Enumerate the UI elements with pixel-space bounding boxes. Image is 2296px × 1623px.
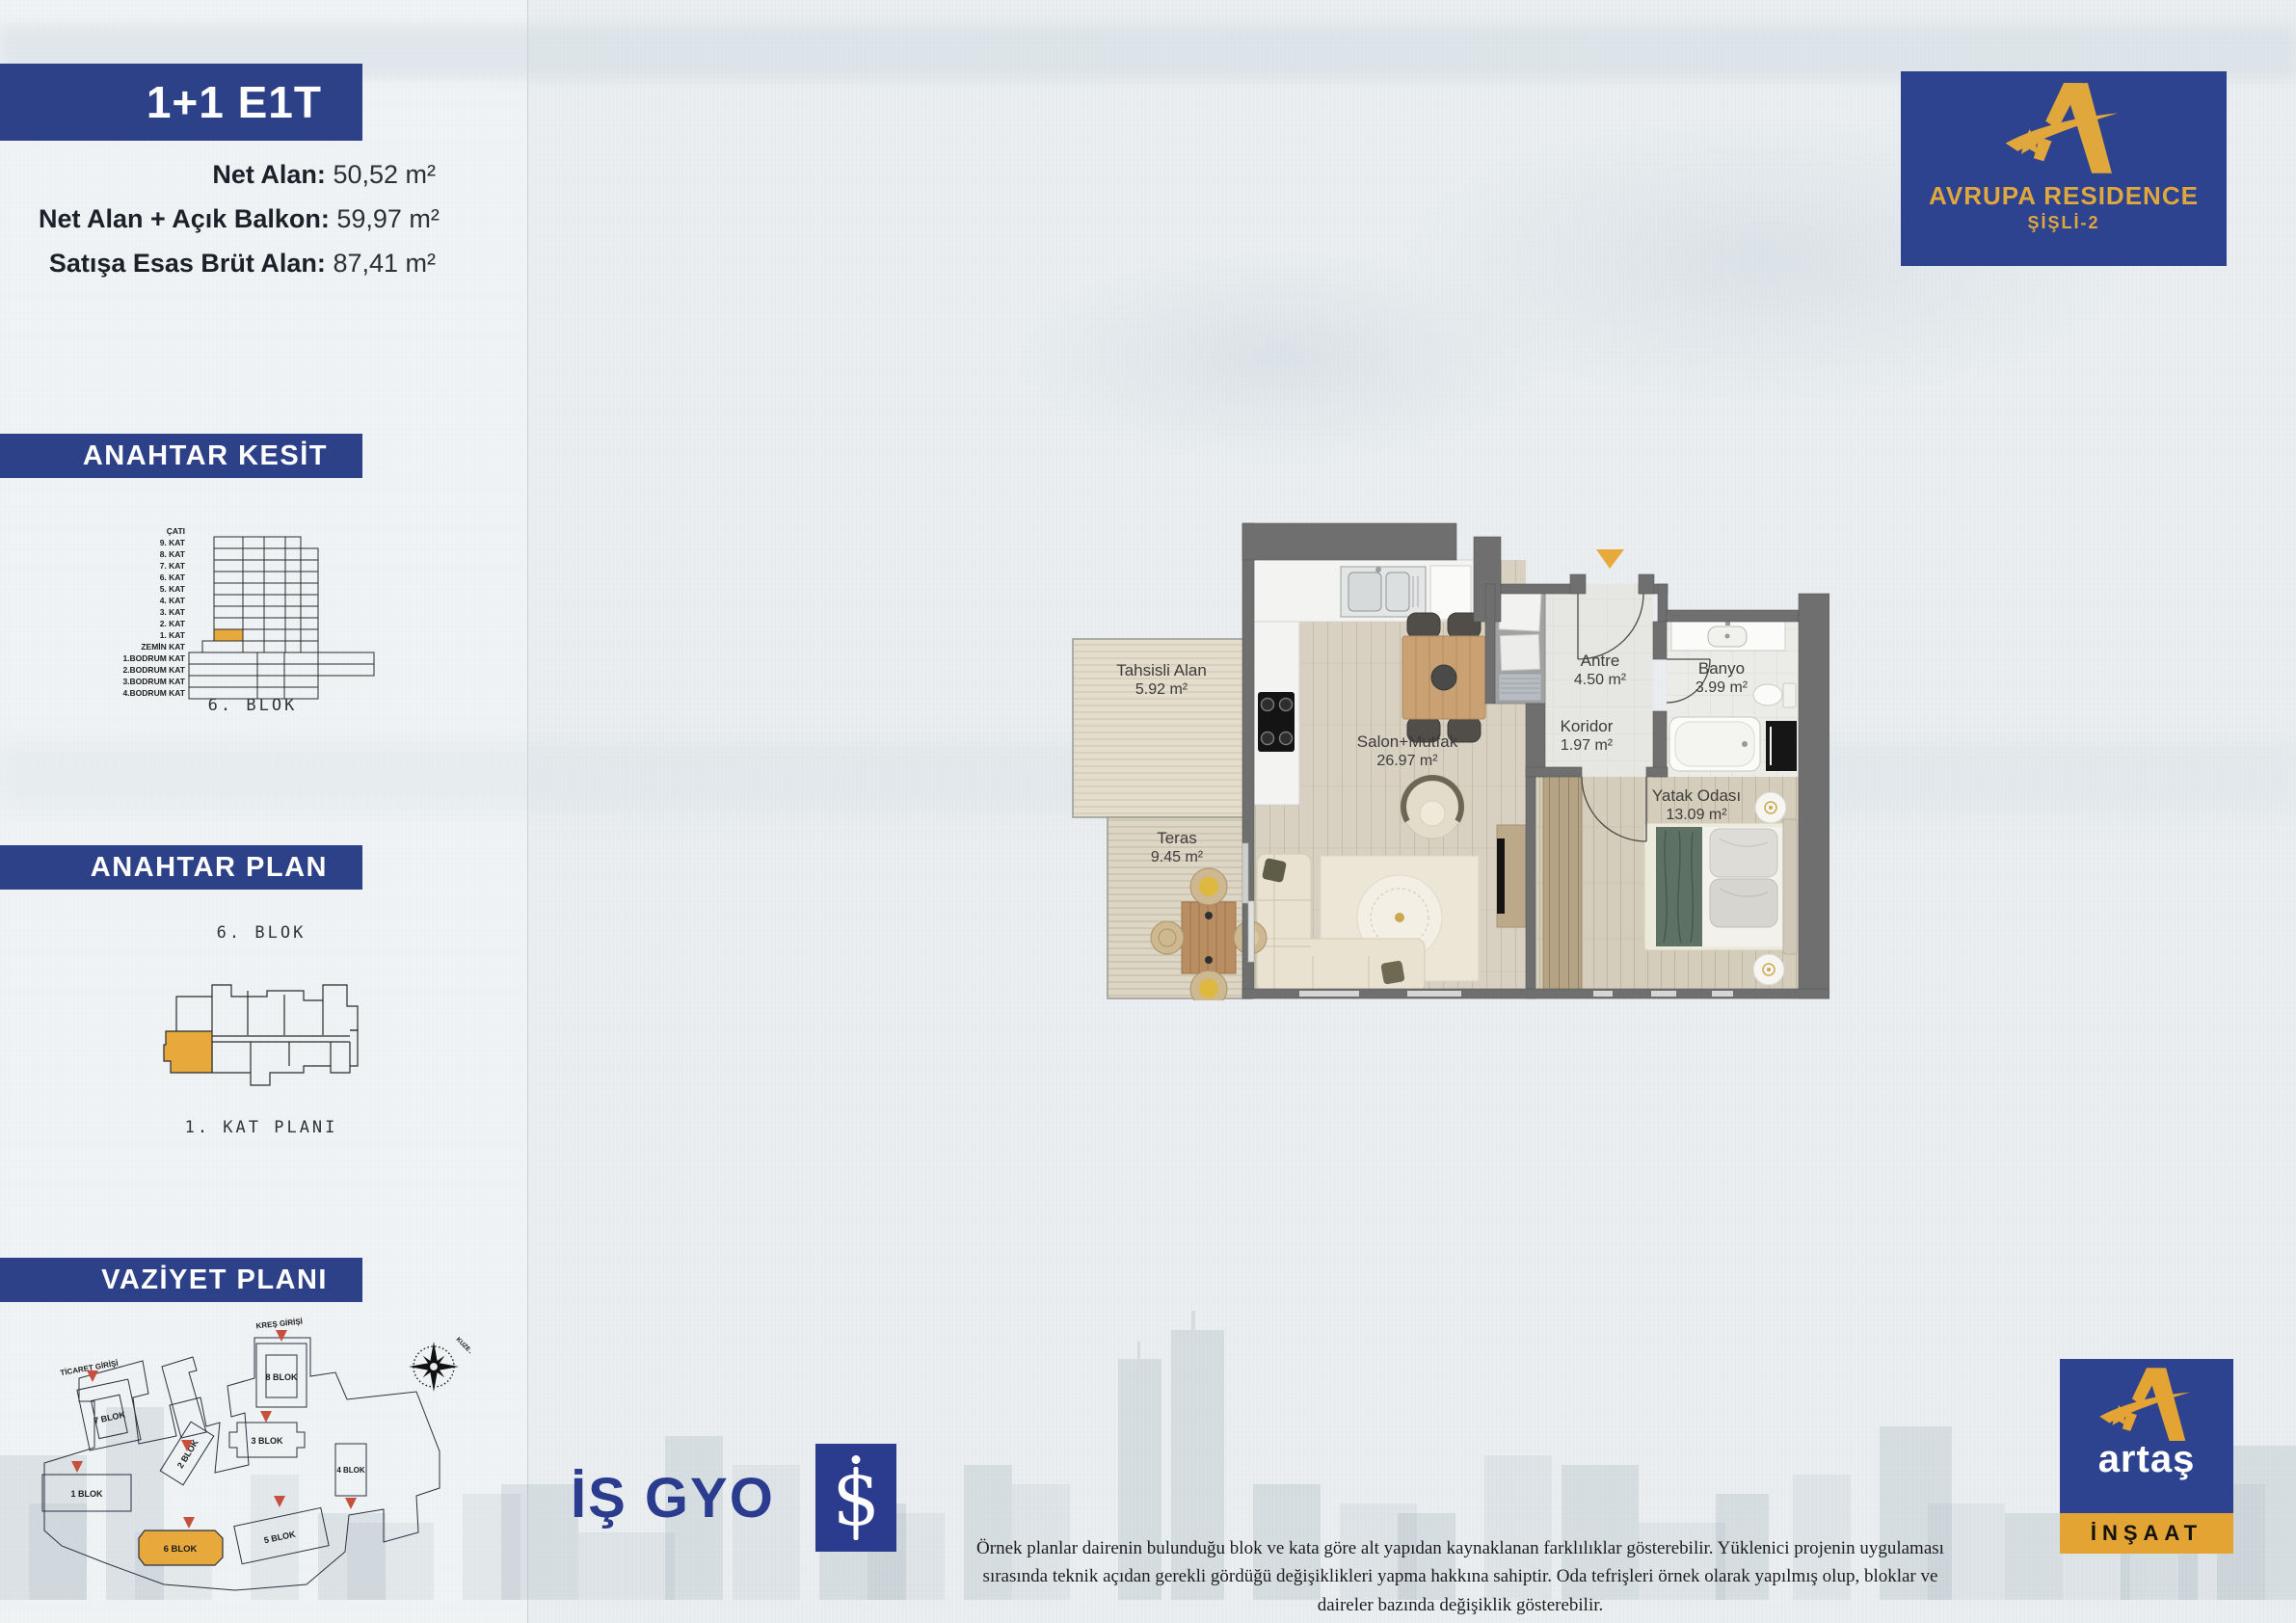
room-label-koridor: Koridor1.97 m² [1561, 717, 1614, 756]
room-label-teras: Teras9.45 m² [1151, 829, 1203, 867]
room-label-banyo: Banyo3.99 m² [1695, 659, 1748, 698]
site-block-1: 1 BLOK [42, 1475, 131, 1511]
unit-code: 1+1 E1T [147, 76, 322, 128]
headboard [1783, 819, 1797, 954]
wardrobe [1543, 777, 1582, 991]
room-label-antre: Antre4.50 m² [1574, 652, 1626, 690]
key-section-caption: 6. BLOK [108, 696, 397, 715]
svg-text:2. KAT: 2. KAT [160, 619, 186, 628]
svg-text:ÇATI: ÇATI [167, 526, 185, 536]
room-label-yatak-odasi: Yatak Odası13.09 m² [1652, 786, 1741, 825]
highlighted-unit [164, 1031, 212, 1073]
artas-division: İNŞAAT [2091, 1521, 2203, 1546]
isbank-symbol-icon: S [815, 1444, 896, 1552]
artas-logo-band: İNŞAAT [2060, 1513, 2233, 1554]
svg-text:4 BLOK: 4 BLOK [336, 1466, 365, 1475]
floor-plan: Tahsisli Alan5.92 m² Teras9.45 m² Salon+… [1068, 519, 1829, 1000]
svg-text:1.BODRUM KAT: 1.BODRUM KAT [122, 653, 185, 663]
highlighted-floor-cell [214, 629, 243, 641]
site-boundary [44, 1338, 440, 1590]
spec-label: Satışa Esas Brüt Alan: [49, 249, 326, 278]
room-label-tahsisli: Tahsisli Alan5.92 m² [1116, 661, 1207, 700]
svg-text:3. KAT: 3. KAT [160, 607, 186, 617]
site-block-8: 8 BLOK [256, 1344, 307, 1407]
room-label-salon: Salon+Mutfak26.97 m² [1357, 732, 1457, 771]
svg-text:5. KAT: 5. KAT [160, 584, 186, 594]
key-section-diagram: ÇATI 9. KAT 8. KAT 7. KAT 6. KAT 5. KAT … [108, 525, 397, 708]
entrance-arrow-icon [1596, 549, 1624, 569]
tv [1497, 838, 1505, 914]
svg-text:5 BLOK: 5 BLOK [263, 1530, 297, 1546]
svg-text:3 BLOK: 3 BLOK [251, 1436, 283, 1446]
isbank-dot [851, 1455, 860, 1464]
svg-text:2.BODRUM KAT: 2.BODRUM KAT [122, 665, 185, 675]
isgyo-logo: İŞ GYO S [571, 1444, 896, 1552]
isgyo-wordmark: İŞ GYO [571, 1466, 775, 1530]
residence-name: AVRUPA RESIDENCE [1929, 181, 2199, 211]
svg-text:4. KAT: 4. KAT [160, 596, 186, 605]
site-block-3: 3 BLOK [229, 1423, 305, 1457]
cloud-wash [1012, 251, 1552, 463]
floor-labels: ÇATI 9. KAT 8. KAT 7. KAT 6. KAT 5. KAT … [122, 526, 185, 698]
site-block-4: 4 BLOK [335, 1444, 366, 1496]
spec-label: Net Alan: [212, 160, 326, 189]
spec-value: 50,52 m² [333, 160, 436, 189]
svg-text:8. KAT: 8. KAT [160, 549, 186, 559]
artas-a-star-icon [2096, 1365, 2197, 1446]
pillow [1710, 829, 1777, 877]
unit-specs: Net Alan: 50,52 m² Net Alan + Açık Balko… [39, 152, 436, 285]
site-block-7: 7 BLOK [77, 1379, 141, 1450]
svg-text:3.BODRUM KAT: 3.BODRUM KAT [122, 677, 185, 686]
artas-wordmark: artaş [2098, 1440, 2196, 1478]
compass-icon: KUZEY [409, 1336, 470, 1392]
spec-label: Net Alan + Açık Balkon: [39, 204, 330, 233]
artas-logo-top: artaş [2060, 1359, 2233, 1513]
toilet [1753, 684, 1782, 705]
entry-cabinet [1495, 586, 1545, 704]
site-block-5: 5 BLOK [234, 1507, 329, 1563]
spec-net-alan: Net Alan: 50,52 m² [39, 152, 436, 197]
key-plan-block-label: 6. BLOK [117, 923, 406, 943]
svg-text:6. KAT: 6. KAT [160, 572, 186, 582]
svg-text:ZEMİN KAT: ZEMİN KAT [141, 642, 185, 652]
section-title: VAZİYET PLANI [101, 1264, 328, 1296]
section-bar-anahtar-kesit: ANAHTAR KESİT [0, 434, 362, 478]
svg-text:7 BLOK: 7 BLOK [93, 1410, 126, 1426]
site-block-2: 2 BLOK [160, 1422, 214, 1485]
residence-logo: AVRUPA RESIDENCE ŞİŞLİ-2 [1901, 71, 2227, 266]
section-title: ANAHTAR KESİT [83, 440, 328, 472]
armchair [1403, 778, 1461, 838]
artas-logo: artaş İNŞAAT [2060, 1359, 2233, 1554]
brochure-page: 1+1 E1T Net Alan: 50,52 m² Net Alan + Aç… [0, 0, 2296, 1623]
residence-logo-a-star-icon [2001, 79, 2126, 179]
site-plan: 7 BLOK TİCARET GİRİŞİ 8 BLOK KREŞ GİRİŞİ… [17, 1309, 470, 1598]
section-title: ANAHTAR PLAN [91, 852, 328, 884]
svg-text:9. KAT: 9. KAT [160, 538, 186, 547]
isbank-stem [853, 1467, 858, 1540]
section-bar-vaziyet: VAZİYET PLANI [0, 1258, 362, 1302]
svg-text:7. KAT: 7. KAT [160, 561, 186, 571]
footer-disclaimer: Örnek planlar dairenin bulunduğu blok ve… [964, 1534, 1957, 1619]
building-section-grid [189, 537, 374, 699]
entrance-label-kres: KREŞ GİRİŞİ [255, 1317, 303, 1331]
pillow [1710, 879, 1777, 927]
svg-text:6 BLOK: 6 BLOK [164, 1544, 198, 1555]
residence-location: ŞİŞLİ-2 [2027, 213, 2099, 233]
spec-net-alan-balkon: Net Alan + Açık Balkon: 59,97 m² [39, 197, 436, 241]
spec-brut-alan: Satışa Esas Brüt Alan: 87,41 m² [39, 241, 436, 285]
svg-text:8 BLOK: 8 BLOK [265, 1372, 298, 1382]
key-plan-caption: 1. KAT PLANI [117, 1118, 406, 1137]
svg-text:1 BLOK: 1 BLOK [70, 1489, 103, 1499]
spec-value: 59,97 m² [336, 204, 440, 233]
svg-text:1. KAT: 1. KAT [160, 630, 186, 640]
unit-title-bar: 1+1 E1T [0, 64, 362, 141]
site-block-6-highlighted: 6 BLOK [139, 1530, 223, 1565]
key-plan-diagram [159, 977, 363, 1098]
section-bar-anahtar-plan: ANAHTAR PLAN [0, 845, 362, 890]
spec-value: 87,41 m² [333, 249, 436, 278]
svg-text:KUZEY: KUZEY [455, 1336, 470, 1356]
